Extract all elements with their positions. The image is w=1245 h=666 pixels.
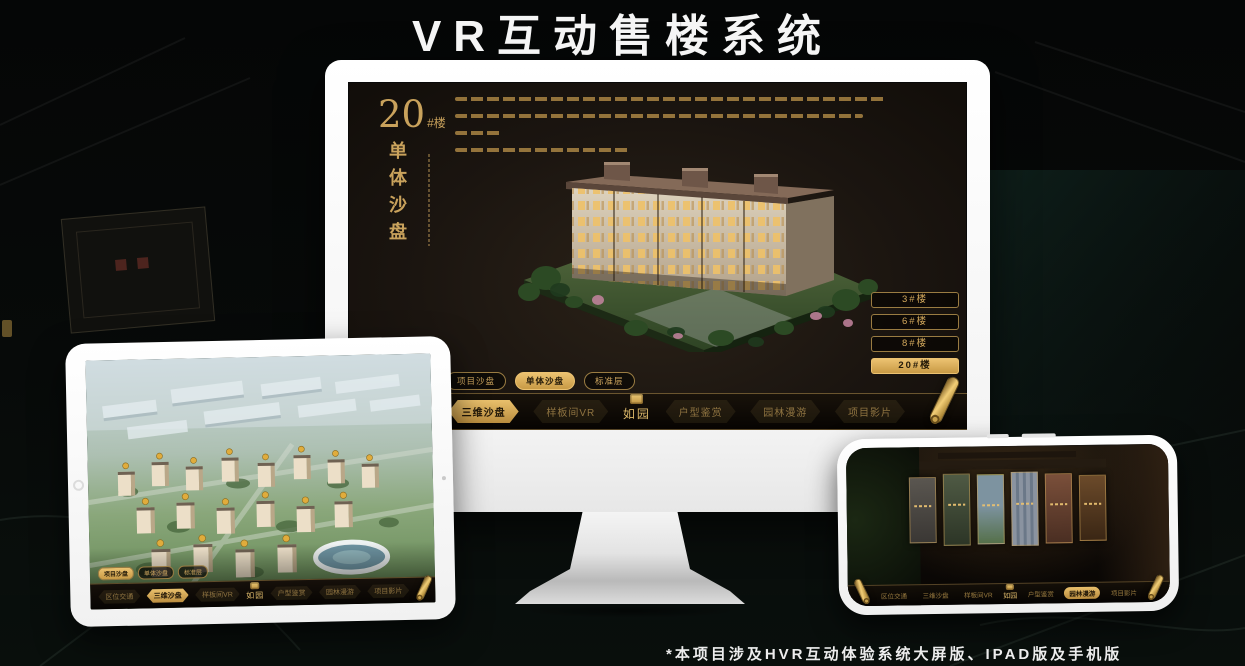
gallery-panel[interactable] [909,477,937,543]
tablet-tab-project-sandbox[interactable]: 项目沙盘 [98,567,134,581]
volume-button[interactable] [987,434,1009,438]
footnote: *本项目涉及HVR互动体验系统大屏版、IPAD版及手机版 [666,643,1122,664]
logo-text: 如园 [246,590,264,601]
seal-icon [630,394,643,404]
nav-item-garden-tour[interactable]: 园林漫游 [750,400,820,423]
phone-device: 区位交通 三维沙盘 样板间VR 如园 户型鉴赏 园林漫游 项目影片 [837,435,1179,616]
stage: VR互动售楼系统 20#楼 单体沙盘 [0,0,1245,666]
building-button-20[interactable]: 20#楼 [871,358,959,374]
camera-icon [442,476,446,480]
building-selector: 3#楼 6#楼 8#楼 20#楼 [871,292,963,380]
logo-text: 如园 [623,405,651,422]
headline-number: 20 [378,93,425,136]
tablet-brand-logo[interactable]: 如园 [246,582,264,601]
tablet-nav-item-3d-sandbox[interactable]: 三维沙盘 [147,588,189,603]
building-button-3[interactable]: 3#楼 [871,292,959,308]
tablet-tab-single-sandbox[interactable]: 单体沙盘 [138,566,174,580]
headline-unit: #楼 [427,116,446,130]
nav-item-project-film[interactable]: 项目影片 [835,400,905,423]
phone-nav-item-project-film[interactable]: 项目影片 [1106,586,1142,599]
building-headline: 20#楼 单体沙盘 [378,96,446,267]
tab-standard-floor[interactable]: 标准层 [584,372,635,390]
power-button[interactable] [1022,433,1056,437]
nav-item-3d-sandbox[interactable]: 三维沙盘 [449,400,519,423]
floor-tabs: 项目沙盘 单体沙盘 标准层 [446,372,635,390]
phone-nav-item-location[interactable]: 区位交通 [876,589,912,602]
gallery-panel[interactable] [1045,473,1073,543]
tablet-nav-item-project-film[interactable]: 项目影片 [367,583,409,598]
tab-single-sandbox[interactable]: 单体沙盘 [515,372,575,390]
gallery-panel[interactable] [977,474,1005,544]
phone-nav-item-3d-sandbox[interactable]: 三维沙盘 [917,589,953,602]
gallery-panel[interactable] [943,474,971,546]
scene-gallery [909,471,1107,548]
tablet-screen: 项目沙盘 单体沙盘 标准层 区位交通 三维沙盘 样板间VR 如园 户型鉴赏 园林… [85,353,435,609]
tablet-nav-item-garden-tour[interactable]: 园林漫游 [319,584,361,599]
tablet-floor-tabs: 项目沙盘 单体沙盘 标准层 [98,565,208,580]
nav-item-unit-gallery[interactable]: 户型鉴赏 [666,400,736,423]
headline-caption-decor [428,154,430,246]
tablet-nav-item-model-room-vr[interactable]: 样板间VR [195,587,240,602]
building-button-6[interactable]: 6#楼 [871,314,959,330]
home-button[interactable] [73,479,84,490]
phone-brand-logo[interactable]: 如园 [1003,584,1017,601]
phone-nav-item-garden-tour[interactable]: 园林漫游 [1064,587,1100,600]
phone-nav-item-model-room-vr[interactable]: 样板间VR [959,588,998,601]
tablet-nav-item-unit-gallery[interactable]: 户型鉴赏 [270,585,312,600]
brand-logo[interactable]: 如园 [623,394,651,422]
phone-nav-item-unit-gallery[interactable]: 户型鉴赏 [1023,587,1059,600]
phone-main-nav: 区位交通 三维沙盘 样板间VR 如园 户型鉴赏 园林漫游 项目影片 [848,581,1170,606]
logo-text: 如园 [1003,591,1017,601]
seal-icon [1006,584,1014,590]
headline-subtitle: 单体沙盘 [384,141,410,267]
phone-screen: 区位交通 三维沙盘 样板间VR 如园 户型鉴赏 园林漫游 项目影片 [846,444,1170,606]
building-3d-model[interactable] [516,150,884,352]
seal-icon [250,582,259,589]
tablet-nav-item-location[interactable]: 区位交通 [98,589,140,604]
gallery-panel[interactable] [1079,475,1107,541]
page-title: VR互动售楼系统 [0,0,1245,64]
tablet-device: 项目沙盘 单体沙盘 标准层 区位交通 三维沙盘 样板间VR 如园 户型鉴赏 园林… [65,336,456,627]
tablet-tab-standard-floor[interactable]: 标准层 [178,565,208,579]
gallery-panel[interactable] [1011,472,1039,546]
tab-project-sandbox[interactable]: 项目沙盘 [446,372,506,390]
nav-item-model-room-vr[interactable]: 样板间VR [533,400,608,423]
monitor-stand-shadow [520,604,740,618]
building-button-8[interactable]: 8#楼 [871,336,959,352]
